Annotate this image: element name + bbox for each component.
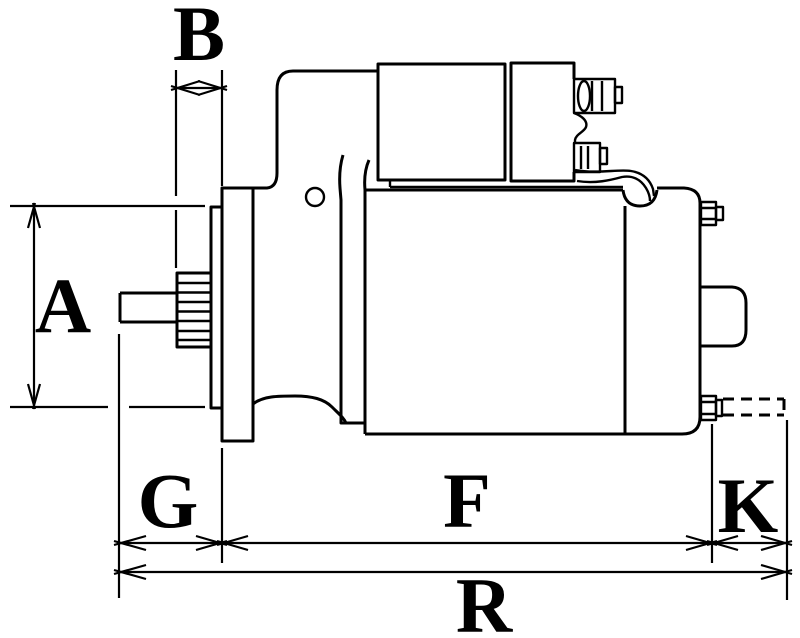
starter-motor-drawing <box>120 63 784 441</box>
terminal-stud <box>716 400 722 416</box>
dimension-label-F: F <box>443 457 491 544</box>
dimension-label-B: B <box>173 0 225 77</box>
solenoid-cap-wave <box>574 113 586 143</box>
bearing-plate <box>211 207 222 408</box>
terminal-ribs <box>701 208 716 219</box>
yoke-joint-edge <box>365 160 369 434</box>
hidden-stud-dashed <box>723 399 784 415</box>
yoke-outline <box>365 188 700 434</box>
mounting-flange <box>222 188 253 441</box>
terminal-stud <box>600 148 607 164</box>
terminal-stud <box>615 87 622 103</box>
drive-housing-bottom <box>253 396 346 423</box>
terminal-face <box>578 81 590 111</box>
terminal-body <box>701 396 716 420</box>
rear-boss <box>700 287 746 346</box>
solenoid-cap <box>511 63 574 181</box>
dimension-label-G: G <box>138 457 199 544</box>
starter-motor-diagram: A B G F K R <box>0 0 800 638</box>
drive-housing-rear-edge <box>340 155 365 423</box>
pinion-gear-teeth <box>177 283 211 340</box>
solenoid-terminal-upper <box>574 79 622 113</box>
dimension-B <box>171 70 227 268</box>
terminal-body <box>701 202 716 225</box>
dimension-label-A: A <box>35 262 91 349</box>
rear-terminal-lower <box>701 396 722 420</box>
dimension-drawing-canvas: A B G F K R <box>0 0 800 638</box>
terminal-ribs <box>701 402 716 414</box>
brush-cap <box>623 190 657 206</box>
field-strap <box>575 170 654 201</box>
terminal-ribs <box>581 146 588 169</box>
dimension-label-K: K <box>718 462 779 549</box>
extension-lines <box>176 70 222 268</box>
output-shaft <box>120 293 177 322</box>
dimension-label-R: R <box>456 562 514 638</box>
motor-body <box>365 188 746 434</box>
housing-hole <box>306 188 324 206</box>
rear-terminal-upper <box>701 202 723 225</box>
solenoid-body <box>378 64 505 180</box>
terminal-ribs <box>592 81 602 111</box>
solenoid-terminal-lower <box>574 143 607 172</box>
drive-housing-top <box>253 71 378 188</box>
terminal-stud <box>716 207 723 220</box>
